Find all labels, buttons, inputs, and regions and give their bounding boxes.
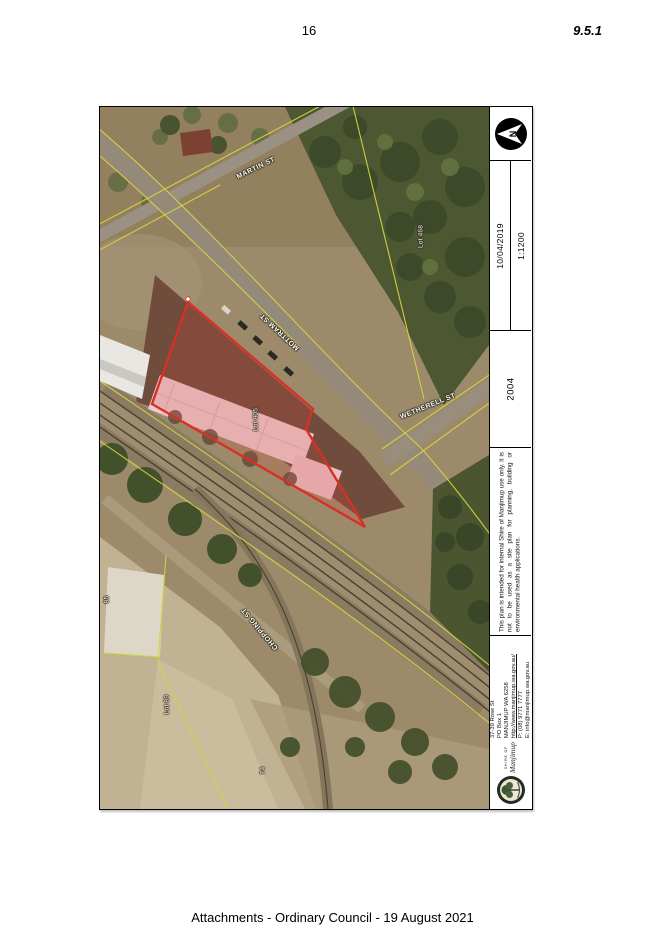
address-line-3: MANJIMUP WA 6258: [504, 639, 511, 738]
contact-address: 37-39 Rose St PO Box 1 MANJIMUP WA 6258 …: [490, 639, 531, 738]
scale-column: 1:1200: [510, 161, 531, 330]
north-arrow-icon: N: [493, 116, 529, 152]
lot-label-468: Lot 468: [418, 219, 425, 255]
lot-label-95: 95: [104, 590, 111, 610]
address-line-1: 37-39 Rose St: [490, 639, 497, 738]
date-scale-cell: 10/04/2019 1:1200: [490, 160, 531, 330]
phone-line: P: (08) 9771 7777: [517, 639, 524, 738]
lot-label-89: Lot 89: [164, 689, 171, 721]
address-line-2: PO Box 1: [497, 639, 504, 738]
footer-text: Attachments - Ordinary Council - 19 Augu…: [0, 910, 665, 925]
north-arrow-cell: N: [490, 107, 531, 160]
site-plan-figure: MARTIN ST MOTTRAM ST WETHERELL ST CHOPPI…: [99, 106, 533, 810]
contact-cell: SHIRE OF Manjimup 37-39 Rose St PO Box 1…: [490, 635, 531, 807]
aerial-map: MARTIN ST MOTTRAM ST WETHERELL ST CHOPPI…: [100, 107, 489, 809]
date-column: 10/04/2019: [490, 161, 510, 330]
lot-label-74: 74: [260, 758, 267, 784]
shire-logo: SHIRE OF Manjimup: [496, 742, 526, 805]
plan-number-cell: 2004: [490, 330, 531, 447]
map-titleblock: N 10/04/2019 1:1200 2004 This plan is in…: [489, 107, 531, 809]
document-page: 16 9.5.1: [0, 0, 665, 941]
plan-date: 10/04/2019: [495, 223, 505, 269]
page-number: 16: [284, 23, 334, 38]
lot-vertex-marker: [186, 297, 190, 301]
email-line: E: info@manjimup.wa.gov.au: [524, 639, 531, 738]
shire-logo-wordmark: SHIRE OF Manjimup: [505, 742, 516, 773]
agenda-item-number: 9.5.1: [573, 23, 602, 38]
plan-scale: 1:1200: [516, 232, 526, 260]
disclaimer-cell: This plan is intended for internal Shire…: [490, 447, 531, 635]
shire-logo-icon: [496, 775, 526, 805]
disclaimer-text: This plan is intended for internal Shire…: [498, 452, 523, 632]
lot-label-905: Lot 905: [253, 400, 260, 440]
contact-block: SHIRE OF Manjimup 37-39 Rose St PO Box 1…: [491, 639, 531, 805]
north-letter: N: [508, 130, 518, 137]
logo-manjimup: Manjimup: [509, 742, 517, 773]
aerial-imagery: [100, 107, 489, 809]
website-link: http://www.manjimup.wa.gov.au/: [511, 639, 518, 738]
plan-number: 2004: [505, 377, 516, 400]
